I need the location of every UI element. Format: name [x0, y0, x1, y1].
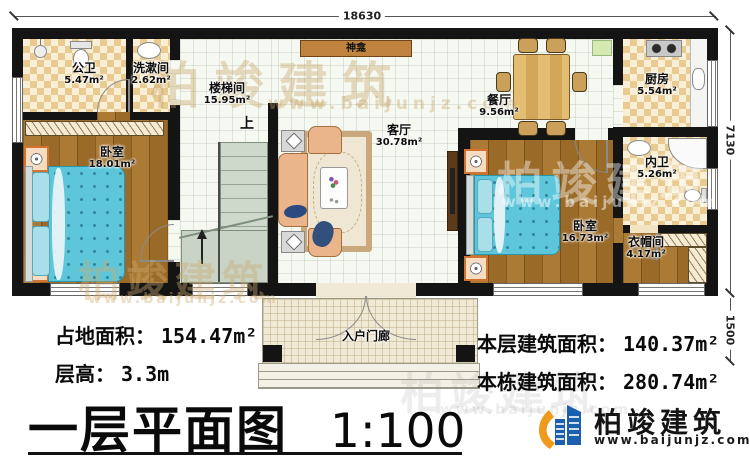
- coffee-table: [320, 167, 348, 209]
- stat-floor-height: 层高：3.3m: [55, 358, 169, 387]
- room-label-public-bath: 公卫 5.47m²: [64, 62, 103, 87]
- room-label-washroom: 洗漱间 2.62m²: [131, 62, 170, 87]
- nightstand: [464, 149, 488, 174]
- porch-label: 入户门廊: [342, 330, 390, 343]
- window-closet: [638, 283, 705, 296]
- bed-blanket-fold: [52, 168, 65, 280]
- room-label-kitchen: 厨房 5.54m²: [637, 73, 676, 98]
- room-label-stairwell: 楼梯间 15.95m²: [204, 82, 250, 107]
- door-gap-kitchen: [613, 85, 623, 127]
- stat-value: 154.47m²: [161, 324, 257, 348]
- room-label-bedroom-right: 卧室 16.73m²: [562, 220, 608, 245]
- room-area: 5.47m²: [64, 75, 103, 86]
- stair-arrow-head: [197, 229, 207, 239]
- window-bedroom-right: [493, 283, 583, 296]
- stair-arrow-shaft: [201, 238, 203, 264]
- dining-table: [513, 54, 570, 120]
- window-kitchen: [707, 60, 718, 127]
- room-label-dining: 餐厅 9.56m²: [479, 94, 518, 119]
- pillow: [477, 179, 493, 214]
- porch-pillar-left: [263, 345, 282, 362]
- ceiling-lamp-icon: [34, 45, 47, 58]
- window-left-wall: [12, 77, 23, 143]
- room-area: 16.73m²: [562, 233, 608, 244]
- window-stairwell: [192, 283, 248, 296]
- closet-wardrobe-right: [688, 247, 707, 283]
- brand-logo-icon: [534, 397, 590, 455]
- room-name: 厨房: [637, 73, 676, 86]
- door-gap-public-bath: [97, 112, 130, 120]
- stat-building-area: 本栋建筑面积：280.74m²: [477, 366, 719, 395]
- stat-label: 层高：: [55, 362, 115, 386]
- porch-pillar-right: [456, 345, 475, 362]
- room-area: 5.54m²: [637, 86, 676, 97]
- pillow: [32, 172, 50, 222]
- room-area: 2.62m²: [131, 75, 170, 86]
- room-area: 18.01m²: [89, 159, 135, 170]
- room-area: 15.95m²: [204, 95, 250, 106]
- bed-blanket-fold: [494, 177, 505, 253]
- room-area: 9.56m²: [479, 107, 518, 118]
- door-gap-bedroom-right: [575, 128, 608, 140]
- toilet-tank: [70, 41, 92, 49]
- stat-value: 3.3m: [121, 362, 169, 386]
- dining-chair: [496, 72, 511, 92]
- cabinet: [592, 40, 612, 56]
- dimension-line-right: [730, 30, 731, 294]
- title-scale: 1:100: [330, 404, 465, 459]
- tv-icon: [450, 168, 455, 214]
- brand-url: www.baijunjz.com: [594, 433, 750, 447]
- closet-wardrobe-top: [660, 233, 707, 247]
- room-name: 楼梯间: [204, 82, 250, 95]
- bed-headboard: [466, 175, 474, 255]
- washroom-sink-icon: [137, 42, 161, 59]
- pillow: [32, 226, 50, 276]
- wall-hall-living: [268, 103, 278, 283]
- dining-chair: [546, 38, 566, 53]
- door-gap-closet: [613, 218, 623, 243]
- stat-land-area: 占地面积：154.47m²: [55, 320, 257, 349]
- stat-value: 140.37m²: [623, 332, 719, 356]
- stat-label: 本栋建筑面积：: [477, 370, 617, 394]
- room-label-living: 客厅 30.78m²: [376, 124, 422, 149]
- dimension-porch-label: 1500: [724, 311, 737, 350]
- public-bath-door-leaf: [128, 79, 130, 112]
- stair-up-label: 上: [240, 117, 254, 133]
- room-area: 5.26m²: [637, 169, 676, 180]
- bedroom-right-door-leaf: [606, 140, 608, 173]
- stair-landing: [181, 230, 268, 283]
- room-label-bedroom-left: 卧室 18.01m²: [89, 146, 135, 171]
- room-name: 内卫: [637, 156, 676, 169]
- toilet-tank: [701, 188, 707, 203]
- stat-value: 280.74m²: [623, 370, 719, 394]
- room-label-ensuite-bath: 内卫 5.26m²: [637, 156, 676, 181]
- dining-chair: [518, 121, 538, 136]
- room-area: 4.17m²: [626, 249, 665, 260]
- armchair: [308, 126, 342, 154]
- window-ensuite: [707, 168, 718, 210]
- kitchen-sink-icon: [692, 68, 705, 90]
- title-underline: [28, 452, 462, 455]
- room-name: 卧室: [89, 146, 135, 159]
- room-name: 公卫: [64, 62, 103, 75]
- door-gap-washroom: [170, 60, 180, 105]
- room-name: 卧室: [562, 220, 608, 233]
- dining-chair: [546, 121, 566, 136]
- room-name: 洗漱间: [131, 62, 170, 75]
- wardrobe-left-bedroom: [25, 121, 164, 136]
- stat-label: 本层建筑面积：: [477, 332, 617, 356]
- porch-steps: [258, 363, 480, 389]
- door-gap-ensuite: [630, 225, 658, 233]
- dimension-height-label: 7130: [724, 121, 737, 160]
- stat-label: 占地面积：: [55, 324, 155, 348]
- shrine-altar: 神龛: [300, 40, 412, 57]
- ensuite-sink-icon: [627, 140, 651, 156]
- ensuite-toilet-icon: [684, 189, 701, 202]
- stair-railing: [218, 142, 220, 282]
- nightstand: [464, 256, 488, 281]
- window-bedroom-left: [50, 283, 120, 296]
- stove-icon: [646, 40, 682, 57]
- room-name: 客厅: [376, 124, 422, 137]
- room-name: 餐厅: [479, 94, 518, 107]
- dimension-width-label: 18630: [339, 10, 385, 23]
- dining-chair: [572, 72, 587, 92]
- dining-chair: [518, 38, 538, 53]
- room-name: 衣帽间: [626, 236, 665, 249]
- room-area: 30.78m²: [376, 137, 422, 148]
- stat-floor-area: 本层建筑面积：140.37m²: [477, 328, 719, 357]
- pillow: [477, 217, 493, 252]
- floor-plan-canvas: 18630 7130 1500: [0, 0, 750, 465]
- room-label-closet: 衣帽间 4.17m²: [626, 236, 665, 261]
- bedroom-left-door-leaf: [140, 260, 174, 262]
